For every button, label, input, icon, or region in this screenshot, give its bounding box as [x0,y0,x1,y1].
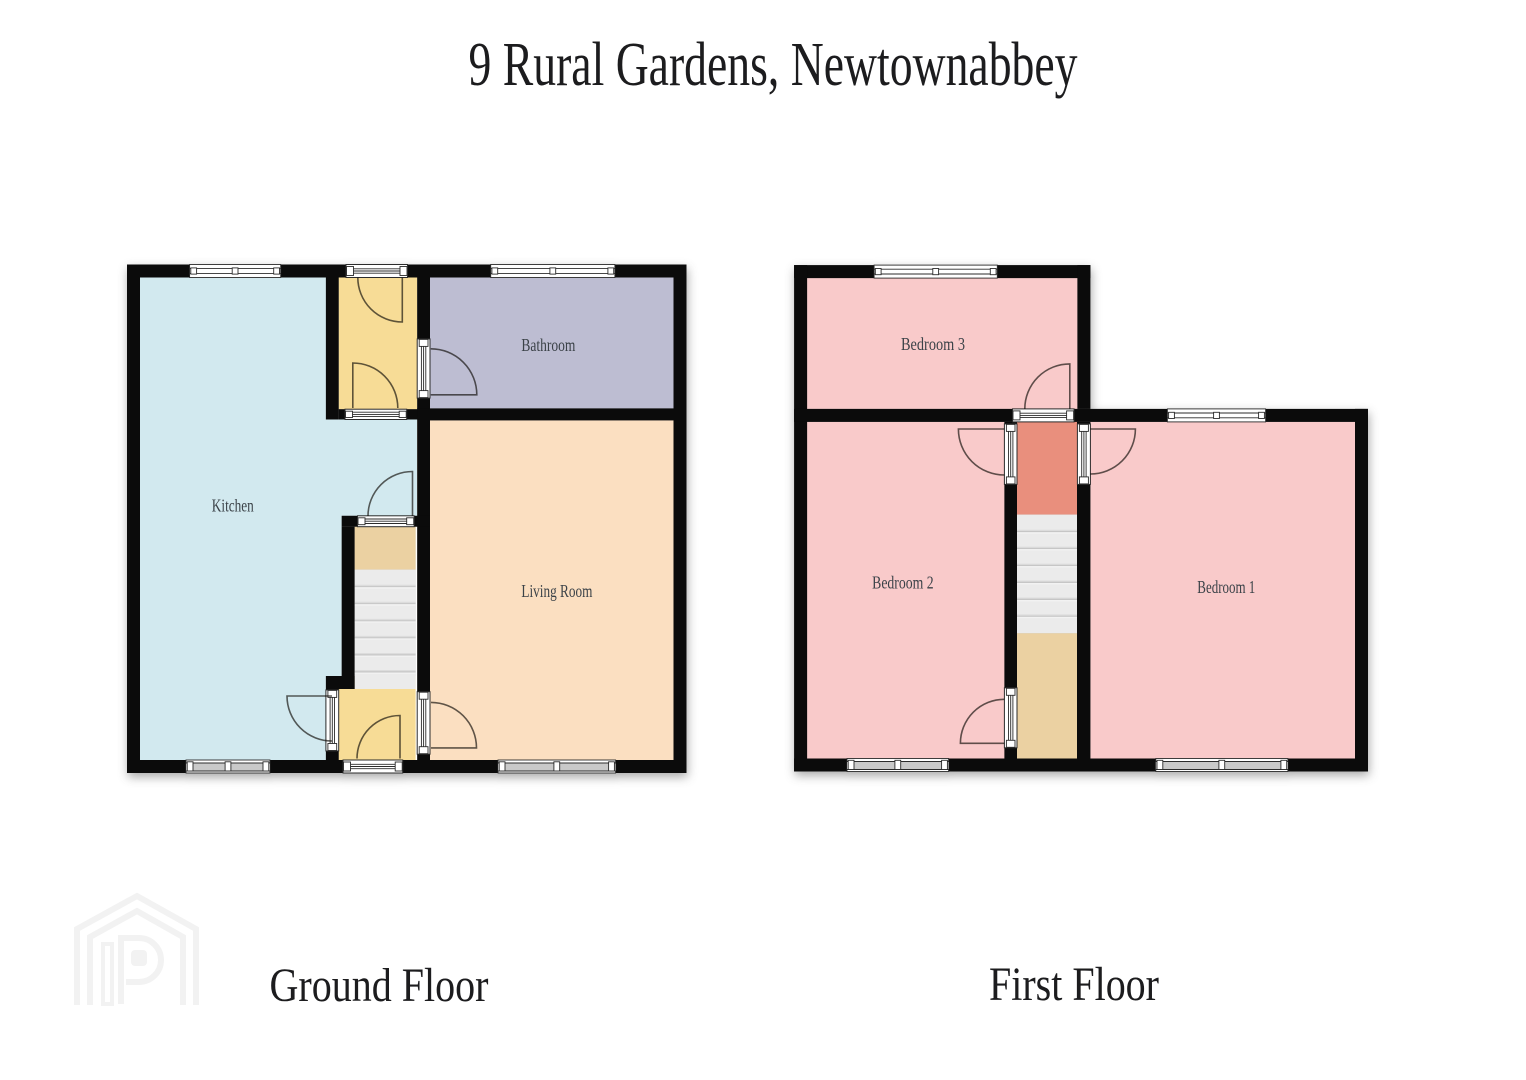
svg-text:Bedroom 1: Bedroom 1 [1197,577,1255,597]
svg-text:Bedroom 2: Bedroom 2 [872,572,934,592]
svg-text:Bathroom: Bathroom [521,335,575,355]
svg-text:Kitchen: Kitchen [212,496,254,516]
svg-text:Bedroom 3: Bedroom 3 [901,334,965,354]
svg-text:Ground Floor: Ground Floor [270,959,489,1012]
svg-text:9 Rural Gardens, Newtownabbey: 9 Rural Gardens, Newtownabbey [469,31,1078,99]
svg-text:Living Room: Living Room [521,581,592,601]
svg-text:First Floor: First Floor [989,958,1159,1011]
